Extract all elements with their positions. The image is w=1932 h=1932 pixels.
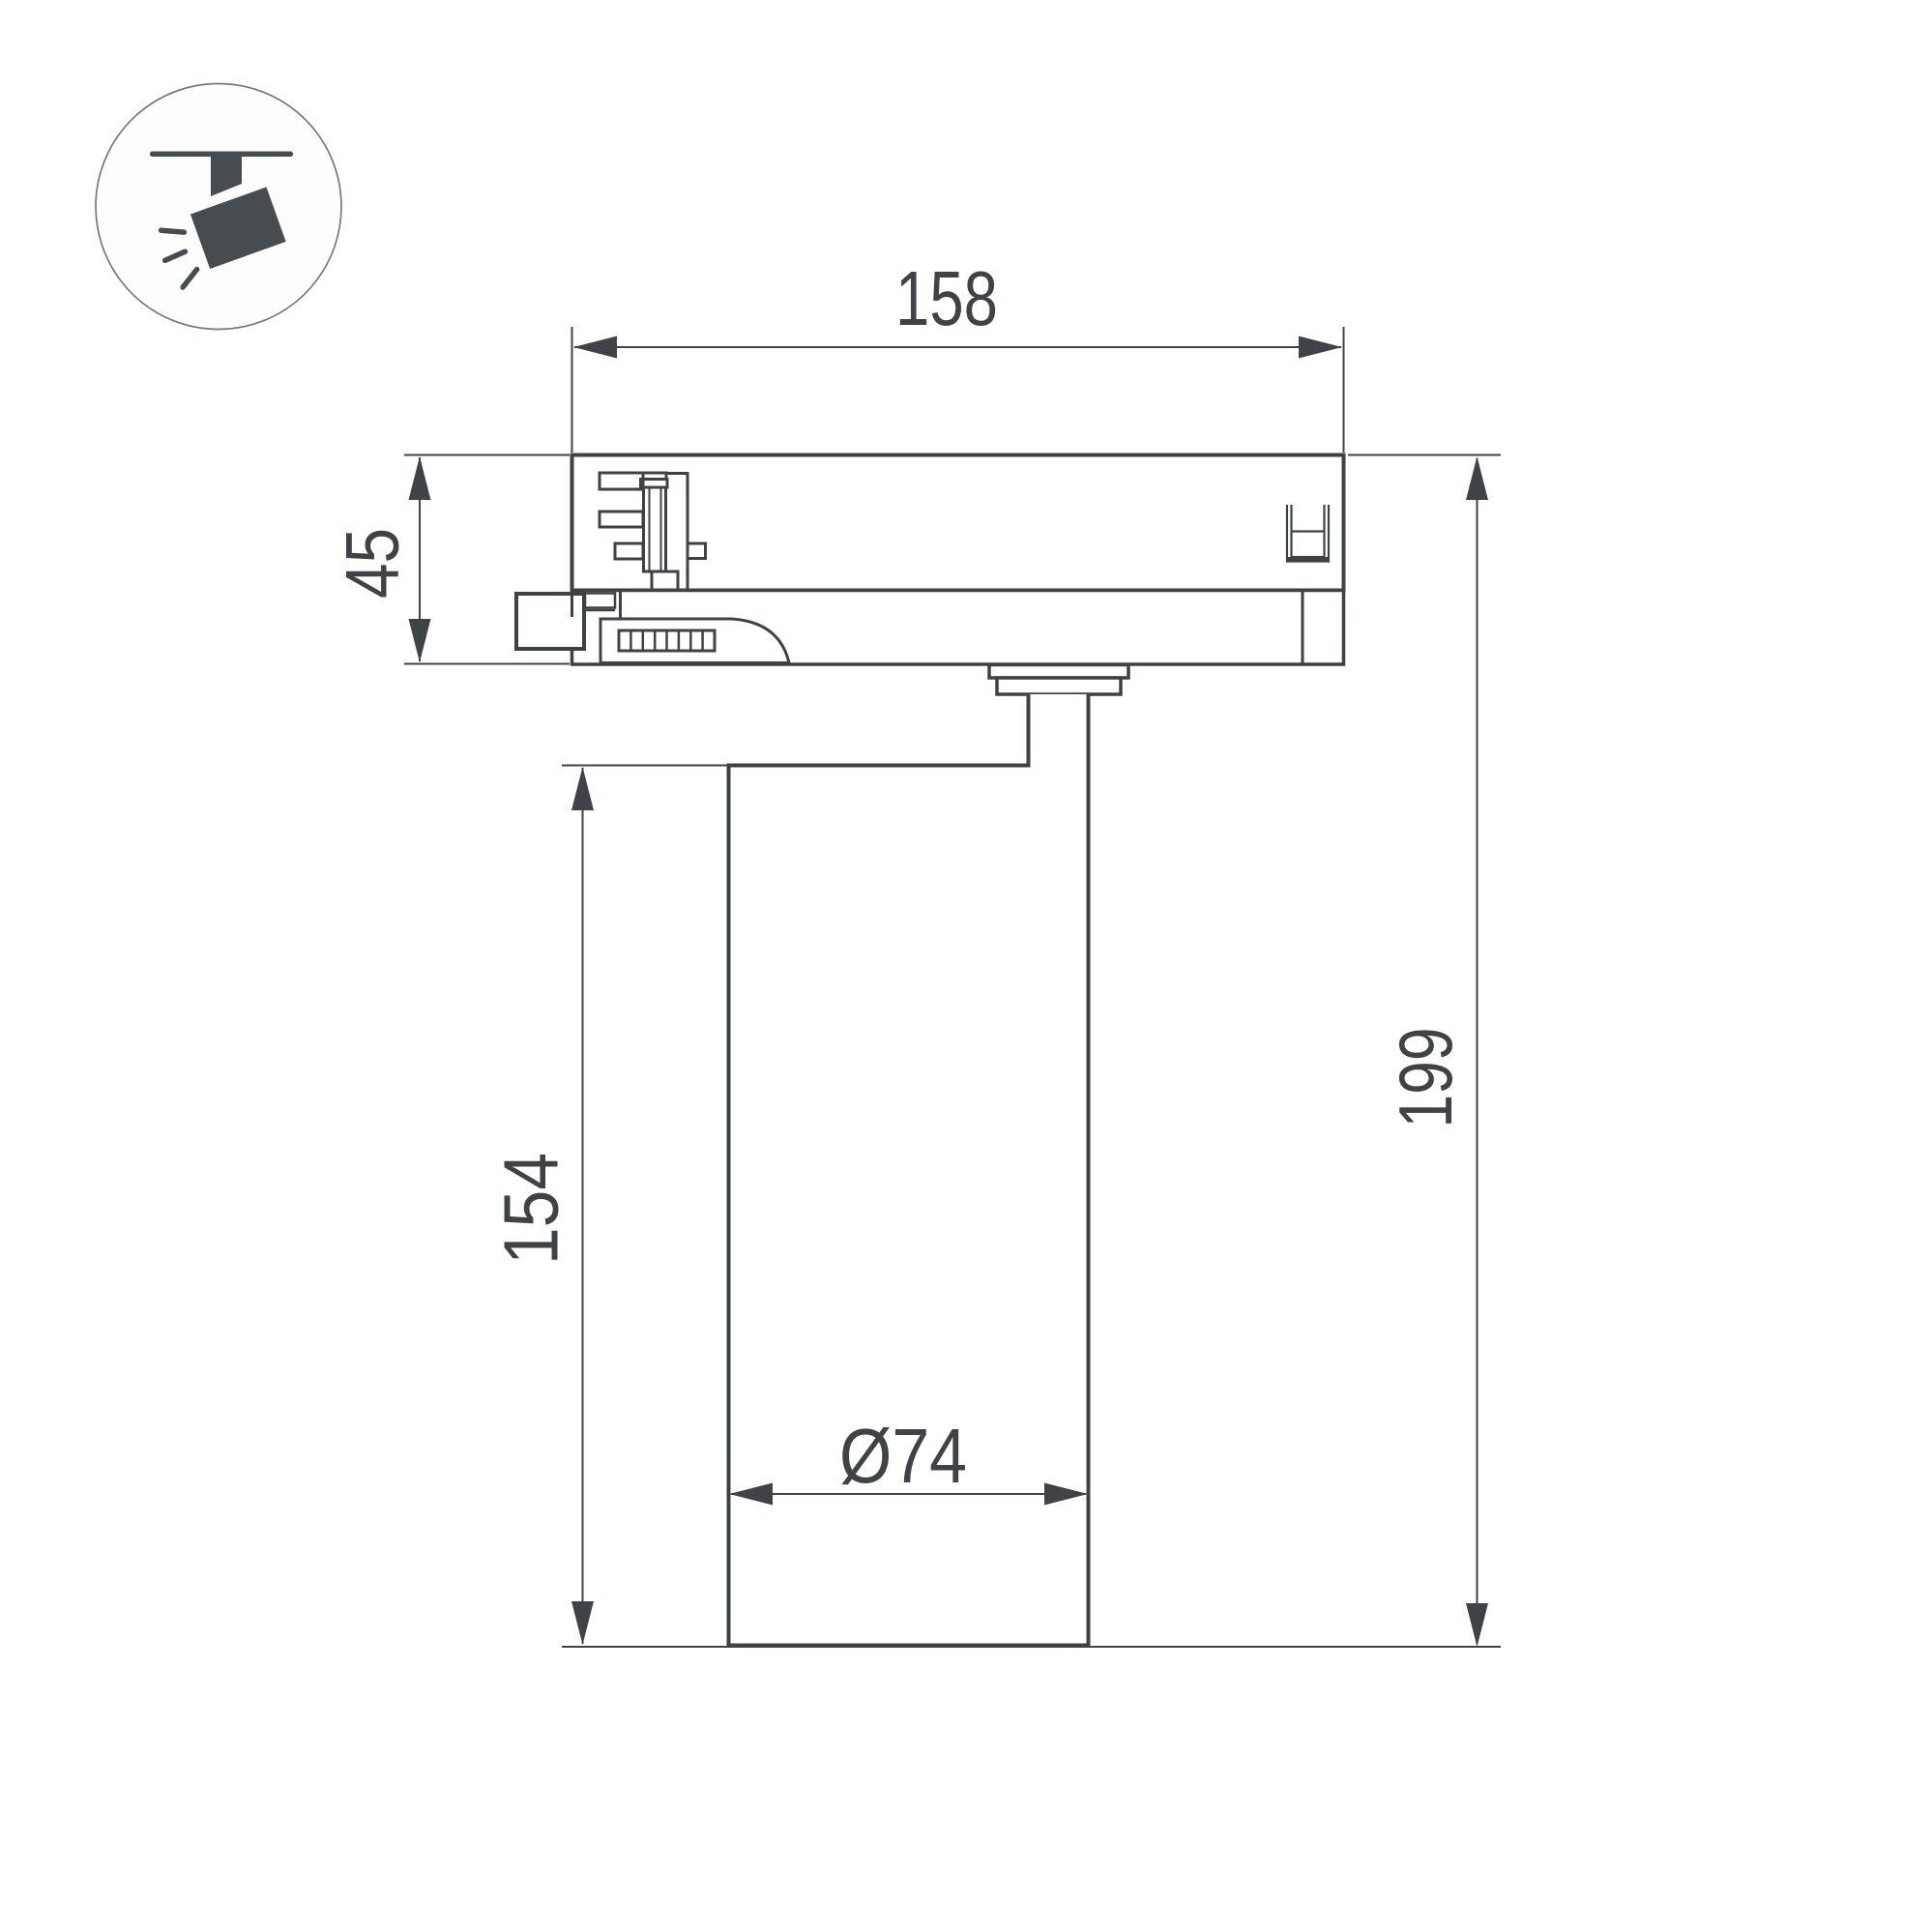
svg-text:199: 199: [1383, 1028, 1468, 1128]
svg-text:154: 154: [488, 1153, 574, 1265]
svg-text:45: 45: [330, 528, 415, 599]
svg-text:Ø74: Ø74: [839, 1413, 967, 1499]
svg-text:158: 158: [895, 255, 998, 341]
